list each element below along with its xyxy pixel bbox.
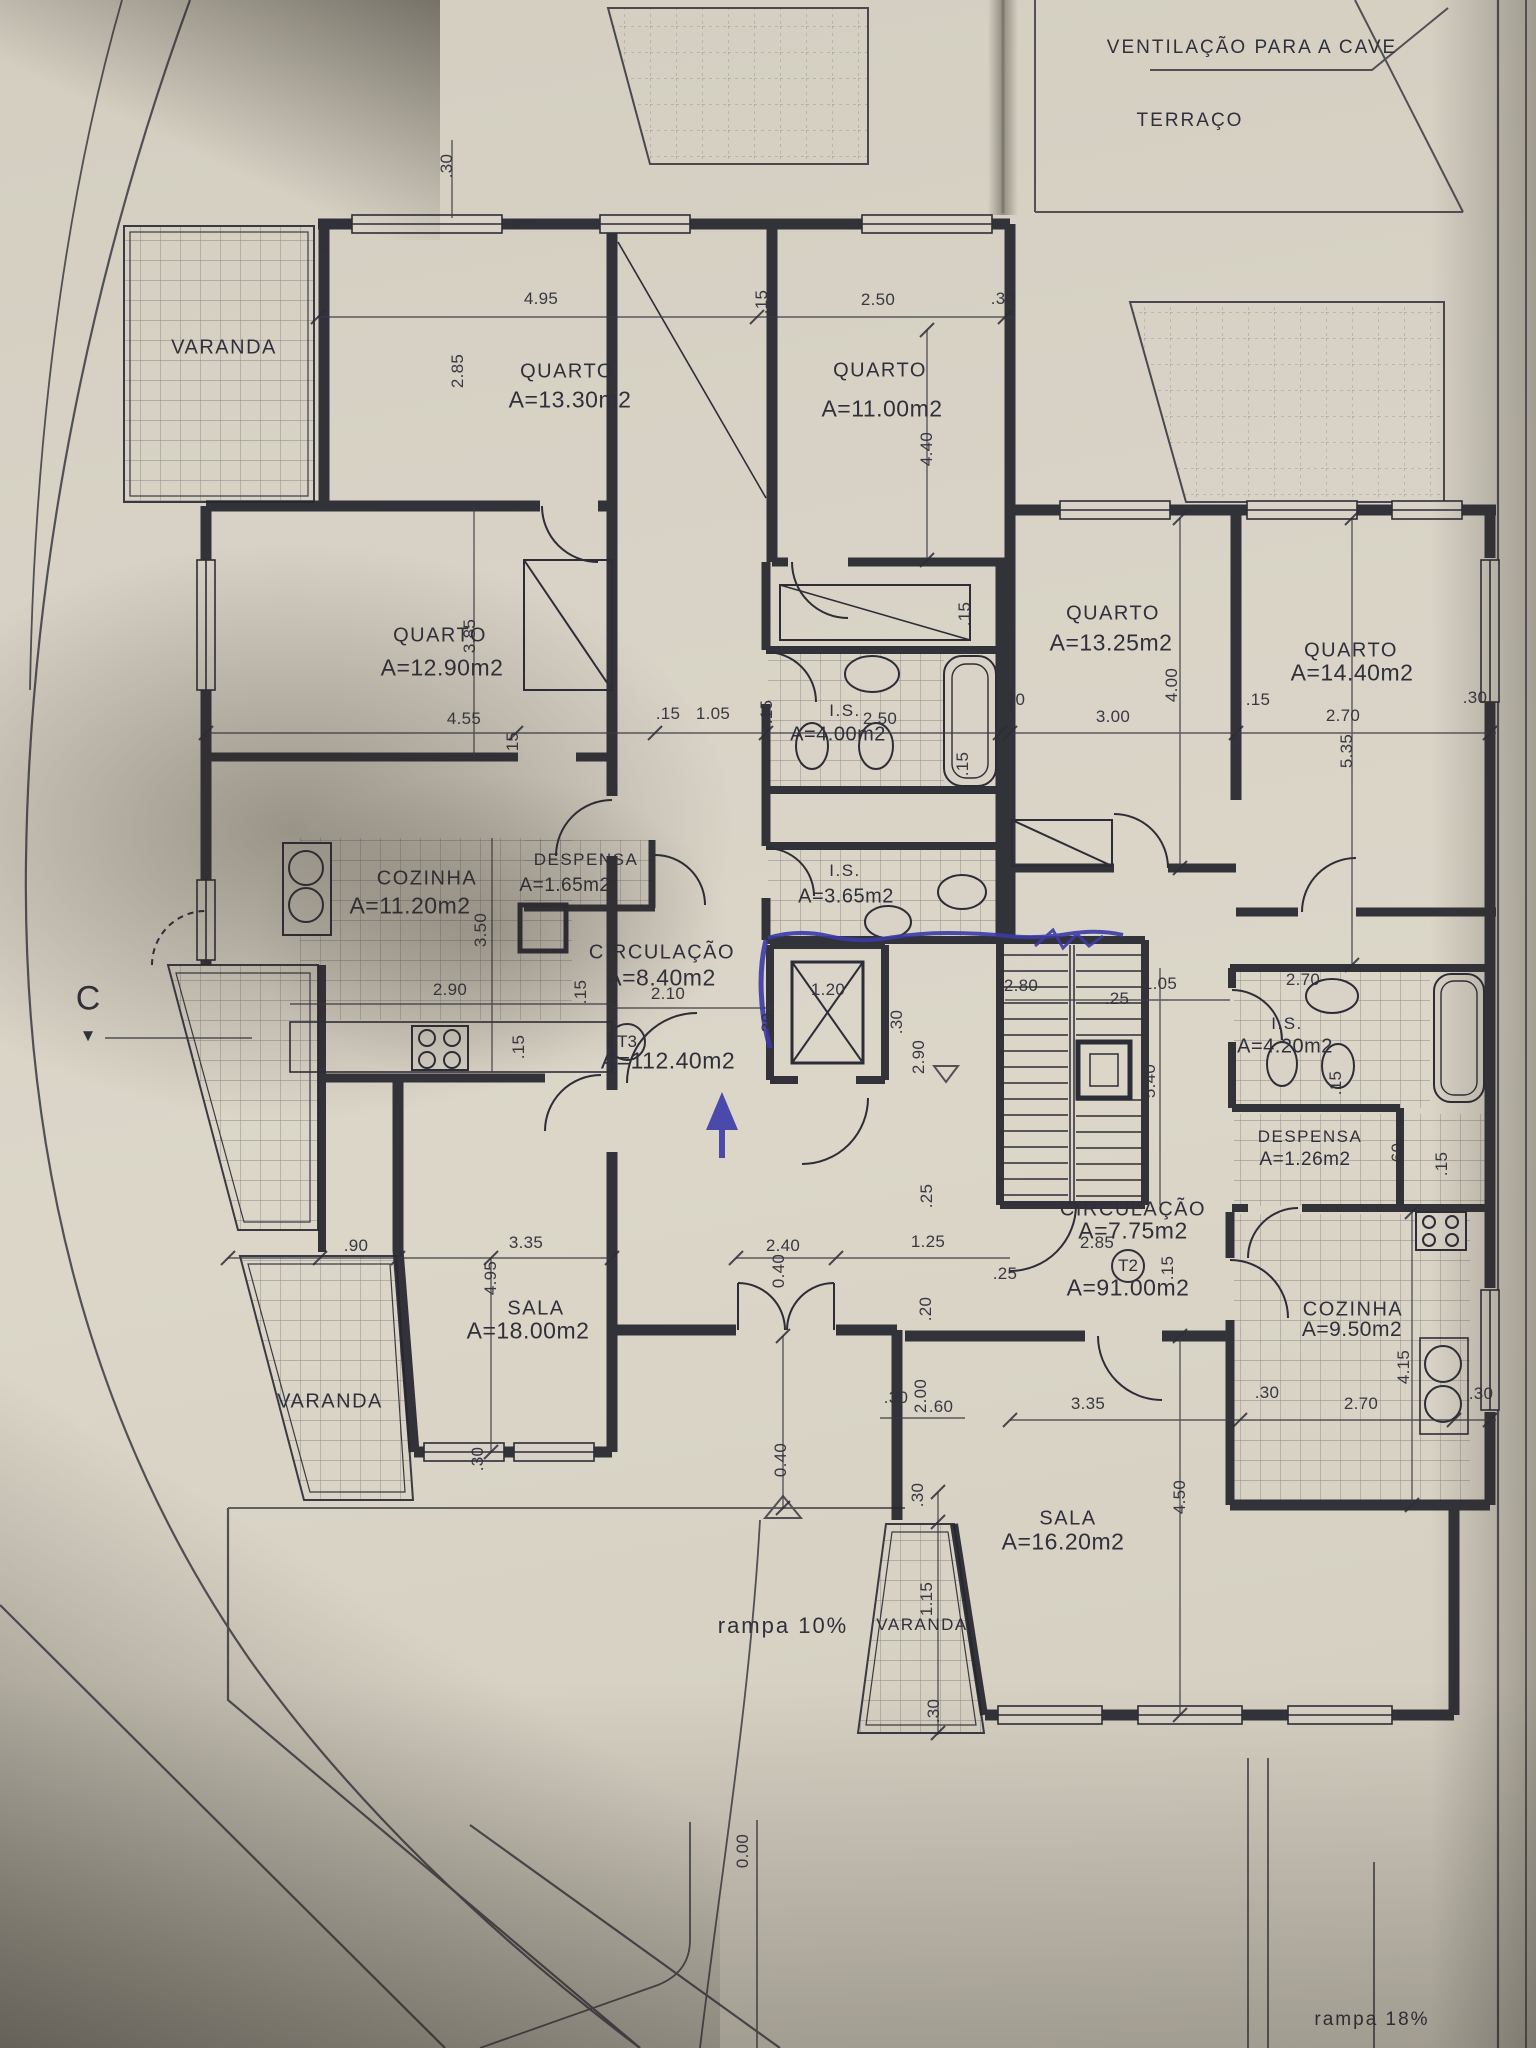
room-label-varanda-bc: VARANDA <box>876 1615 967 1635</box>
dim-label: 3.85 <box>460 619 480 653</box>
dim-label: 1.15 <box>917 1582 937 1616</box>
dim-label: 2.85 <box>1080 1233 1114 1253</box>
dim-label: .30 <box>1469 1384 1494 1404</box>
dim-label: .30 <box>884 1388 909 1408</box>
room-area-quarto-1330: A=13.30m2 <box>509 387 632 414</box>
dim-label: 2.10 <box>651 984 685 1004</box>
dim-label: .30 <box>991 289 1016 309</box>
dim-label: .15 <box>571 980 591 1005</box>
room-label-cozinha-t3: COZINHA <box>377 868 478 891</box>
room-label-circulacao-t3: CIRCULAÇÃO <box>589 942 735 965</box>
dim-label: .30 <box>887 1010 907 1035</box>
room-label-is-420: I.S. <box>1271 1014 1303 1034</box>
dim-label: 1.20 <box>811 980 845 1000</box>
dim-label: .15 <box>955 602 975 627</box>
room-label-sala-16: SALA <box>1039 1508 1096 1531</box>
dim-label: 4.15 <box>1394 1350 1414 1384</box>
dim-label: 1.05 <box>1143 974 1177 994</box>
dim-label: 4.95 <box>481 1261 501 1295</box>
dim-label: 2.50 <box>861 290 895 310</box>
dim-label: .30 <box>437 154 457 179</box>
dim-label: .15 <box>1246 690 1271 710</box>
room-label-is-400: I.S. <box>829 701 861 721</box>
dim-label: 5.40 <box>1140 1064 1160 1098</box>
ramp-18-label: rampa 18% <box>1314 2009 1429 2031</box>
room-area-despensa-t2: A=1.26m2 <box>1259 1149 1350 1171</box>
dim-label: .25 <box>1105 989 1130 1009</box>
room-label-varanda-tl: VARANDA <box>171 337 277 360</box>
dim-label: 2.85 <box>448 354 468 388</box>
dim-label: 2.90 <box>433 980 467 1000</box>
dim-label: 3.50 <box>471 913 491 947</box>
dim-label: 2.80 <box>1004 976 1038 996</box>
dim-label: 4.55 <box>447 709 481 729</box>
dim-label: .25 <box>917 1184 937 1209</box>
dim-label: .30 <box>468 1447 488 1472</box>
dim-label: 2.70 <box>1344 1394 1378 1414</box>
dim-label: .15 <box>953 752 973 777</box>
room-label-varanda-bl: VARANDA <box>277 1391 383 1414</box>
dim-label: .30 <box>908 1483 928 1508</box>
dim-label: .15 <box>656 704 681 724</box>
room-area-is-420: A=4.20m2 <box>1237 1036 1333 1059</box>
dim-label: 4.95 <box>524 289 558 309</box>
dim-label: 4.50 <box>1170 1480 1190 1514</box>
dim-label: 3.35 <box>1071 1394 1105 1414</box>
room-area-quarto-1100: A=11.00m2 <box>821 396 942 423</box>
room-area-sala-18: A=18.00m2 <box>467 1318 590 1345</box>
dim-label: .15 <box>1432 1152 1452 1177</box>
room-area-cozinha-t2: A=9.50m2 <box>1302 1318 1402 1342</box>
dim-label: .15 <box>509 1035 529 1060</box>
dim-label: .15 <box>1326 1071 1346 1096</box>
room-label-quarto-1100: QUARTO <box>833 360 927 383</box>
section-marker-c: C <box>76 980 101 1019</box>
dim-label: .90 <box>344 1236 369 1256</box>
dim-label: 5.35 <box>1337 734 1357 768</box>
dim-label: 2.70 <box>1286 970 1320 990</box>
room-label-quarto-1330: QUARTO <box>520 361 614 384</box>
room-area-quarto-1440: A=14.40m2 <box>1291 660 1414 687</box>
room-label-is-365: I.S. <box>829 861 861 881</box>
section-arrow-icon: ▼ <box>80 1026 97 1046</box>
dim-label: 3.00 <box>1096 707 1130 727</box>
room-area-is-365: A=3.65m2 <box>798 886 894 909</box>
dim-label: .60 <box>929 1397 954 1417</box>
dim-label: .15 <box>1158 1256 1178 1281</box>
elevator <box>792 962 863 1063</box>
room-area-despensa-t3: A=1.65m2 <box>519 875 610 897</box>
dim-label: 2.90 <box>909 1040 929 1074</box>
room-area-cozinha-t3: A=11.20m2 <box>349 893 470 920</box>
dim-label: .15 <box>757 700 777 725</box>
dim-label: 0.00 <box>733 1834 753 1868</box>
dim-label: 4.00 <box>1162 668 1182 702</box>
ventilation-note: VENTILAÇÃO PARA A CAVE <box>1107 37 1397 59</box>
room-label-despensa-t3: DESPENSA <box>534 850 639 870</box>
dim-label: .30 <box>758 1013 778 1038</box>
dim-label: .20 <box>916 1297 936 1322</box>
room-area-sala-16: A=16.20m2 <box>1002 1529 1125 1556</box>
dim-label: 2.70 <box>1326 706 1360 726</box>
dim-label: 0.40 <box>769 1254 789 1288</box>
dim-label: .30 <box>1255 1383 1280 1403</box>
dim-label: 1.25 <box>911 1232 945 1252</box>
dim-label: 0.40 <box>771 1443 791 1477</box>
floor-plan-photo: VENTILAÇÃO PARA A CAVE TERRAÇO rampa 10%… <box>0 0 1536 2048</box>
terrace-label: TERRAÇO <box>1137 110 1244 132</box>
dim-label: 3.35 <box>509 1233 543 1253</box>
dim-label: .30 <box>1463 688 1488 708</box>
room-label-despensa-t2: DESPENSA <box>1258 1127 1363 1147</box>
dim-label: .30 <box>924 1699 944 1724</box>
dim-label: 4.40 <box>917 432 937 466</box>
dim-label: .25 <box>993 1264 1018 1284</box>
dim-label: .60 <box>1388 1143 1408 1168</box>
dim-label: 2.50 <box>863 709 897 729</box>
dim-label: .15 <box>752 290 772 315</box>
room-area-quarto-1325: A=13.25m2 <box>1050 630 1173 657</box>
dim-label: .20 <box>1001 690 1026 710</box>
unit-area-t3: A=112.40m2 <box>601 1048 735 1075</box>
ramp-10-label: rampa 10% <box>718 1613 849 1639</box>
room-area-quarto-1290: A=12.90m2 <box>381 655 504 682</box>
dim-label: .15 <box>503 732 523 757</box>
room-label-quarto-1325: QUARTO <box>1066 603 1160 626</box>
dim-label: 1.05 <box>696 704 730 724</box>
